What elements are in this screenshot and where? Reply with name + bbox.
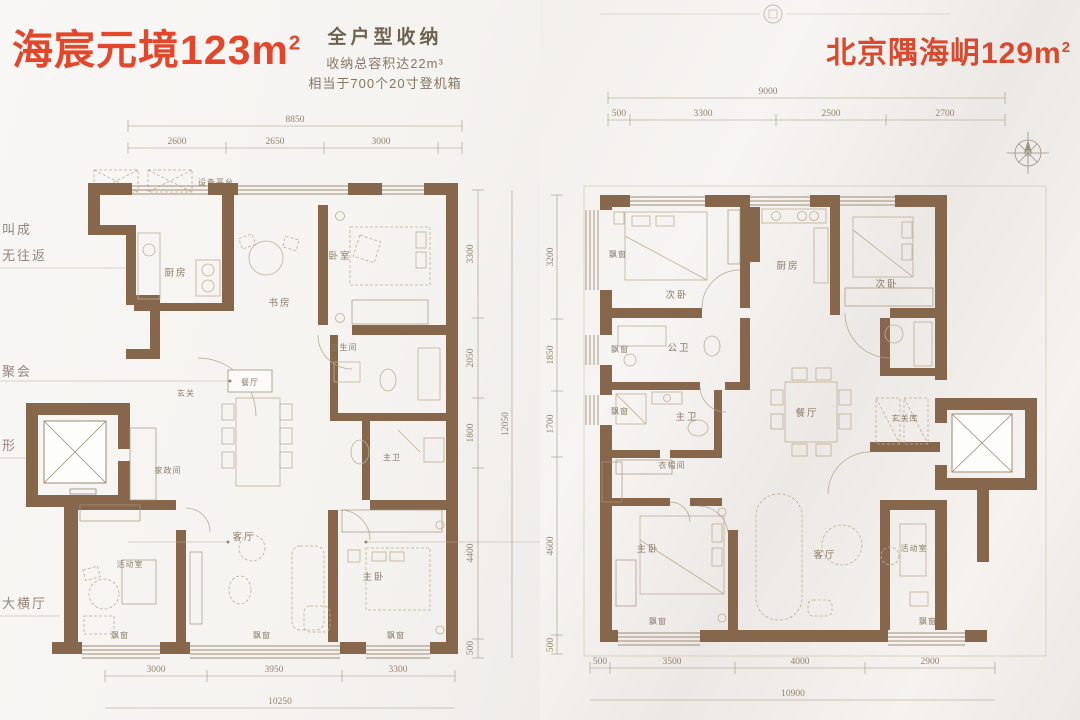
right-room-master-bath: 主卫 — [675, 411, 698, 423]
right-room-bedroom2a: 次卧 — [665, 289, 688, 301]
left-room-activity: 活动室 — [117, 559, 144, 569]
right-elevator-shaft — [952, 414, 1012, 472]
dim-right-2: 2050 — [466, 348, 476, 367]
right-floorplan-drawing: 9000 500 3300 2500 2700 3200 1850 1700 4… — [540, 0, 1080, 720]
left-plan-closets — [80, 300, 442, 624]
right-plan-top-dims: 9000 500 3300 2500 2700 — [608, 87, 1005, 126]
left-elevator-shaft — [44, 421, 106, 494]
right-top-bath-fixtures — [885, 322, 932, 366]
right-plan-bottom-dims: 500 3500 4000 2900 10900 — [590, 657, 995, 700]
rdim-left-1: 3200 — [546, 247, 556, 266]
rdim-left-4: 4600 — [546, 536, 556, 555]
rdim-left-5: 500 — [546, 638, 556, 653]
left-kitchen-furniture — [138, 233, 220, 299]
right-room-dining: 餐厅 — [795, 407, 818, 419]
left-room-utility: 家政间 — [155, 465, 182, 475]
right-room-foyer-storage: 玄关库 — [892, 413, 919, 423]
dim-bottom-1: 3000 — [147, 665, 166, 675]
right-master-bedroom-furniture — [640, 508, 726, 622]
left-room-bedroom: 卧室 — [328, 250, 351, 262]
compass-icon — [1007, 132, 1049, 174]
rdim-top-1: 500 — [612, 109, 627, 119]
right-room-activity: 活动室 — [901, 543, 928, 553]
rdim-top-total: 9000 — [759, 87, 778, 97]
left-living-furniture — [229, 535, 330, 632]
rdim-bottom-2: 3500 — [663, 657, 682, 667]
dim-bottom-total: 10250 — [268, 697, 292, 707]
left-room-foyer: 玄关 — [177, 388, 195, 398]
dim-bottom-3: 3300 — [389, 665, 408, 675]
right-plan-left-dims: 3200 1850 1700 4600 500 — [546, 195, 563, 654]
right-bay-left-3: 飘窗 — [611, 406, 629, 416]
dim-bottom-2: 3950 — [265, 665, 284, 675]
left-room-study: 书房 — [268, 297, 291, 309]
left-bathroom-fixtures — [334, 348, 440, 400]
right-room-master-bedroom: 主卧 — [636, 543, 659, 555]
dim-right-4: 4400 — [466, 543, 476, 562]
rdim-left-3: 1700 — [546, 414, 556, 433]
right-living-furniture — [756, 494, 862, 620]
right-plan-windows — [630, 197, 895, 205]
left-room-bathroom: 卫生间 — [331, 342, 358, 352]
right-room-living: 客厅 — [813, 549, 836, 561]
right-room-bedroom2b: 次卧 — [875, 278, 898, 290]
left-plan-walls — [26, 183, 458, 654]
left-plan-right-dims: 3300 2050 1800 4400 500 12050 — [466, 190, 512, 658]
dim-right-3: 1800 — [466, 423, 476, 442]
right-bay-bottom-2: 飘窗 — [919, 616, 937, 626]
dim-right-5: 500 — [466, 641, 476, 656]
left-plan-door-arcs — [186, 335, 370, 540]
rdim-left-2: 1850 — [546, 345, 556, 364]
left-plan-bottom-dims: 3000 3950 3300 10250 — [105, 665, 455, 708]
rdim-top-3: 2500 — [822, 109, 841, 119]
callout-4: 形 — [2, 438, 17, 453]
right-bedroom2b-furniture — [853, 217, 913, 277]
right-bay-bottom-1: 飘窗 — [649, 616, 667, 626]
left-bay-1: 飘窗 — [111, 630, 129, 640]
rdim-bottom-1: 500 — [593, 657, 608, 667]
right-plan-bay-windows — [586, 210, 965, 645]
dim-top-3: 3000 — [372, 137, 391, 147]
dim-top-1: 2600 — [168, 137, 187, 147]
right-room-public-bath: 公卫 — [667, 343, 690, 354]
left-bedroom-furniture — [336, 212, 431, 323]
rdim-top-4: 2700 — [936, 109, 955, 119]
left-room-dining: 餐厅 — [241, 378, 259, 387]
right-room-kitchen: 厨房 — [776, 260, 799, 272]
callout-5: 大横厅 — [2, 596, 47, 611]
right-plan-door-arcs — [670, 270, 890, 532]
left-dining-furniture — [222, 398, 292, 486]
left-room-master-bath: 主卫 — [383, 452, 401, 462]
left-plan-top-dims: 8850 2600 2650 3000 — [128, 115, 462, 154]
left-room-kitchen: 厨房 — [164, 267, 187, 279]
left-bay-2: 飘窗 — [253, 630, 271, 640]
rdim-bottom-4: 2900 — [921, 657, 940, 667]
right-room-closet: 衣帽间 — [659, 460, 686, 470]
rdim-bottom-total: 10900 — [781, 689, 805, 699]
dim-top-2: 2650 — [266, 137, 285, 147]
right-bay-left-2: 飘窗 — [611, 344, 629, 354]
left-room-master-bedroom: 主卧 — [362, 571, 385, 583]
left-study-furniture — [239, 234, 299, 275]
dim-right-total: 12050 — [501, 412, 511, 436]
dim-right-1: 3300 — [466, 244, 476, 263]
dim-top-total: 8850 — [286, 115, 305, 125]
left-activity-furniture — [83, 566, 119, 634]
callout-2: 无往返 — [2, 248, 47, 263]
callout-3: 聚会 — [2, 364, 32, 379]
right-bedroom2a-furniture — [614, 212, 707, 280]
right-bay-left-1: 飘窗 — [609, 249, 627, 259]
left-plan-bay-windows — [82, 646, 430, 658]
rdim-bottom-3: 4000 — [791, 657, 810, 667]
left-bay-3: 飘窗 — [387, 630, 405, 640]
left-floorplan-drawing: 8850 2600 2650 3000 3300 2050 1800 4400 … — [0, 0, 540, 720]
callout-1: 叫成 — [2, 222, 32, 237]
left-room-living: 客厅 — [232, 531, 255, 543]
rdim-top-2: 3300 — [694, 109, 713, 119]
emblem-seal-icon — [600, 5, 950, 23]
floorplan-comparison: 海宸元境123m2 全户型收纳 收纳总容积达22m³ 相当于700个20寸登机箱… — [0, 0, 1080, 720]
